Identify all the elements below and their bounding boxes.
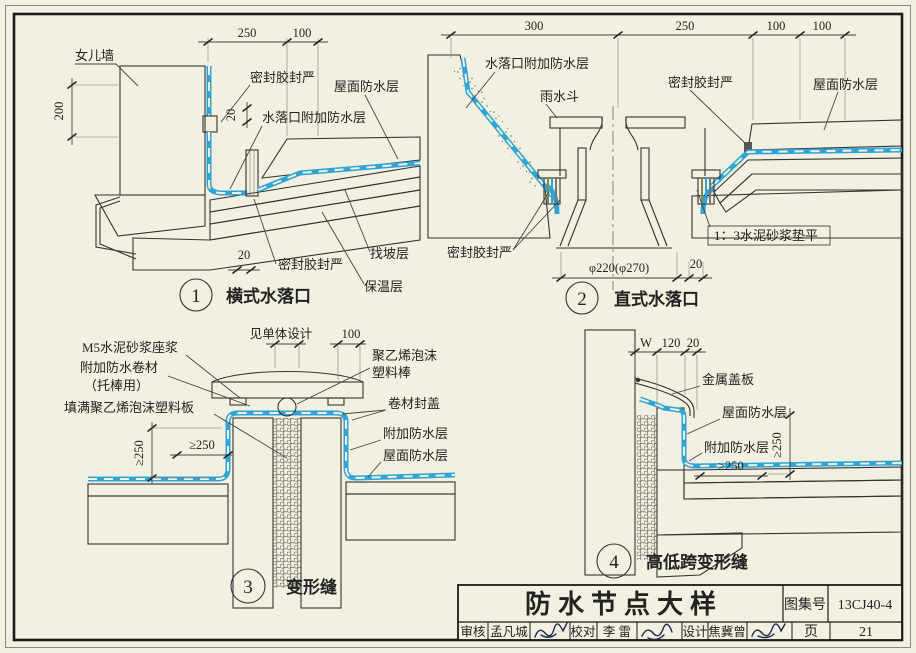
left-bank-section xyxy=(428,55,550,238)
foam-filler xyxy=(637,415,657,560)
designer-name: 焦冀曾 xyxy=(708,624,746,639)
leveling-layer xyxy=(714,158,902,203)
reviewer-name: 孟凡城 xyxy=(490,625,528,639)
m5-bedding-right xyxy=(328,398,344,405)
detail-4-number: 4 xyxy=(609,552,619,573)
sheet-border xyxy=(14,14,902,640)
upstand-section xyxy=(657,408,684,470)
dim-v250: ≥250 xyxy=(770,432,784,458)
dim-250: 250 xyxy=(676,19,695,33)
atlas-sheet: 250 100 200 20 20 女儿墙 密封胶封严 屋面防水层 水落口附加防… xyxy=(0,0,916,653)
roof-slab-right xyxy=(346,494,455,540)
design-label: 设计 xyxy=(682,624,707,639)
label-roof-membrane: 屋面防水层 xyxy=(722,405,787,420)
outlet-spout xyxy=(246,150,258,196)
detail-1-number: 1 xyxy=(191,286,201,307)
label-m5-mortar: M5水泥砂浆座浆 xyxy=(82,340,178,355)
sheet-title: 防水节点大样 xyxy=(525,589,723,619)
dim-250: 250 xyxy=(238,26,257,40)
page-number: 21 xyxy=(859,625,873,640)
atlas-no-value: 13CJ40-4 xyxy=(838,598,892,613)
label-sealant-top: 密封胶封严 xyxy=(250,70,315,85)
dim-100: 100 xyxy=(293,26,312,40)
label-rod-2: 塑料棒 xyxy=(372,365,411,380)
parapet-mortar-band xyxy=(95,195,205,236)
label-outlet-membrane: 水落口附加防水层 xyxy=(485,56,589,71)
funnel-wall-right xyxy=(641,148,649,200)
detail-2-vertical-outlet: 300 250 100 100 φ220(φ270) 20 水落口附加防水层 雨… xyxy=(428,19,902,314)
label-metal-cover: 金属盖板 xyxy=(702,372,754,387)
scan-frame xyxy=(6,6,911,648)
label-outlet-membrane: 水落口附加防水层 xyxy=(262,110,366,125)
label-hopper: 雨水斗 xyxy=(540,89,579,104)
roof-slab xyxy=(657,470,902,535)
label-fill-foam: 填满聚乙烯泡沫塑料板 xyxy=(64,400,194,415)
detail-3-deformation-joint: 见单体设计 100 ≥250 ≥250 M5水泥砂浆座浆 附加防水卷材 （托棒用… xyxy=(64,326,455,608)
membrane xyxy=(209,132,247,193)
label-roof-membrane: 屋面防水层 xyxy=(334,79,399,94)
roof-slab-left xyxy=(88,496,228,544)
membrane xyxy=(463,58,552,196)
label-added-membrane: 附加防水层 xyxy=(383,426,448,441)
label-added-roll: 附加防水卷材 xyxy=(80,360,158,375)
hopper-throat xyxy=(590,117,638,150)
funnel-skirt xyxy=(556,200,672,248)
page-label: 页 xyxy=(804,625,818,640)
label-mortar: 1：3水泥砂浆垫平 xyxy=(714,228,818,243)
detail-1-title: 横式水落口 xyxy=(226,286,311,306)
parapet-section xyxy=(120,66,205,195)
eave-flashing xyxy=(96,197,136,259)
drawing-canvas: 250 100 200 20 20 女儿墙 密封胶封严 屋面防水层 水落口附加防… xyxy=(0,0,916,653)
label-sealant-bottom: 密封胶封严 xyxy=(278,257,343,272)
atlas-no-label: 图集号 xyxy=(784,596,826,613)
detail-4-title: 高低跨变形缝 xyxy=(646,552,748,572)
title-block: 防水节点大样 图集号 13CJ40-4 审核 孟凡城 校对 李 雷 设计 焦冀曾… xyxy=(458,585,902,640)
dim-20: 20 xyxy=(687,336,700,350)
dim-120: 120 xyxy=(662,336,681,350)
detail-2-title: 直式水落口 xyxy=(614,289,699,309)
dim-20-outlet: 20 xyxy=(238,248,251,262)
dim-h250: ≥250 xyxy=(189,438,215,452)
review-label: 审核 xyxy=(460,624,486,639)
detail-2-number: 2 xyxy=(577,289,587,310)
slope-layer xyxy=(210,177,420,224)
dim-w: W xyxy=(640,336,652,350)
label-screed: 找坡层 xyxy=(370,246,409,261)
label-roof-membrane: 屋面防水层 xyxy=(383,448,448,463)
dim-diameter: φ220(φ270) xyxy=(589,261,649,275)
detail-3-title: 变形缝 xyxy=(286,577,337,597)
leveling-left xyxy=(88,484,228,496)
membrane xyxy=(712,150,902,186)
dim-300: 300 xyxy=(525,19,544,33)
leveling-right xyxy=(346,482,455,494)
dim-v250: ≥250 xyxy=(132,440,146,466)
insulation-layer xyxy=(210,190,420,240)
flange-cap-right xyxy=(692,170,720,178)
cover-fixing xyxy=(636,378,640,382)
checker-name: 李 雷 xyxy=(603,624,631,639)
high-wall-section xyxy=(585,330,635,575)
dim-100: 100 xyxy=(767,19,786,33)
cap-slab xyxy=(212,382,363,398)
label-added-roll-2: （托棒用） xyxy=(84,378,149,393)
dim-200: 200 xyxy=(52,102,66,121)
check-label: 校对 xyxy=(570,624,595,639)
membrane xyxy=(258,163,420,190)
detail-4-highlow-joint: W 120 20 金属盖板 屋面防水层 附加防水层 ≥250 ≥250 4 高低… xyxy=(585,330,902,578)
detail-3-number: 3 xyxy=(243,577,253,598)
dim-100: 100 xyxy=(342,327,361,341)
hopper-grate-left xyxy=(550,117,602,128)
label-sealant-left: 密封胶封严 xyxy=(447,245,512,260)
label-sealant-top: 密封胶封严 xyxy=(668,75,733,90)
label-added-membrane: 附加防水层 xyxy=(704,440,769,455)
mortar-wedge xyxy=(748,120,902,150)
label-membrane-cap: 卷材封盖 xyxy=(388,396,440,411)
label-roof-membrane: 屋面防水层 xyxy=(813,77,878,92)
dim-100b: 100 xyxy=(813,19,832,33)
membrane-drain-right xyxy=(703,188,714,214)
foam-filler xyxy=(273,418,301,588)
label-parapet: 女儿墙 xyxy=(75,48,114,63)
funnel-wall-left xyxy=(578,148,586,200)
cap-mortar-top xyxy=(212,372,363,383)
dim-see-design: 见单体设计 xyxy=(250,326,313,341)
hopper-grate-right xyxy=(626,117,685,128)
detail-1-horizontal-outlet: 250 100 200 20 20 女儿墙 密封胶封严 屋面防水层 水落口附加防… xyxy=(52,26,420,311)
label-insulation: 保温层 xyxy=(364,279,403,294)
label-rod-1: 聚乙烯泡沫 xyxy=(372,348,437,363)
dim-20: 20 xyxy=(690,257,703,271)
dim-h250: ≥250 xyxy=(718,459,744,473)
joint-wall-left xyxy=(233,418,273,608)
flange-cap-left xyxy=(538,170,566,178)
